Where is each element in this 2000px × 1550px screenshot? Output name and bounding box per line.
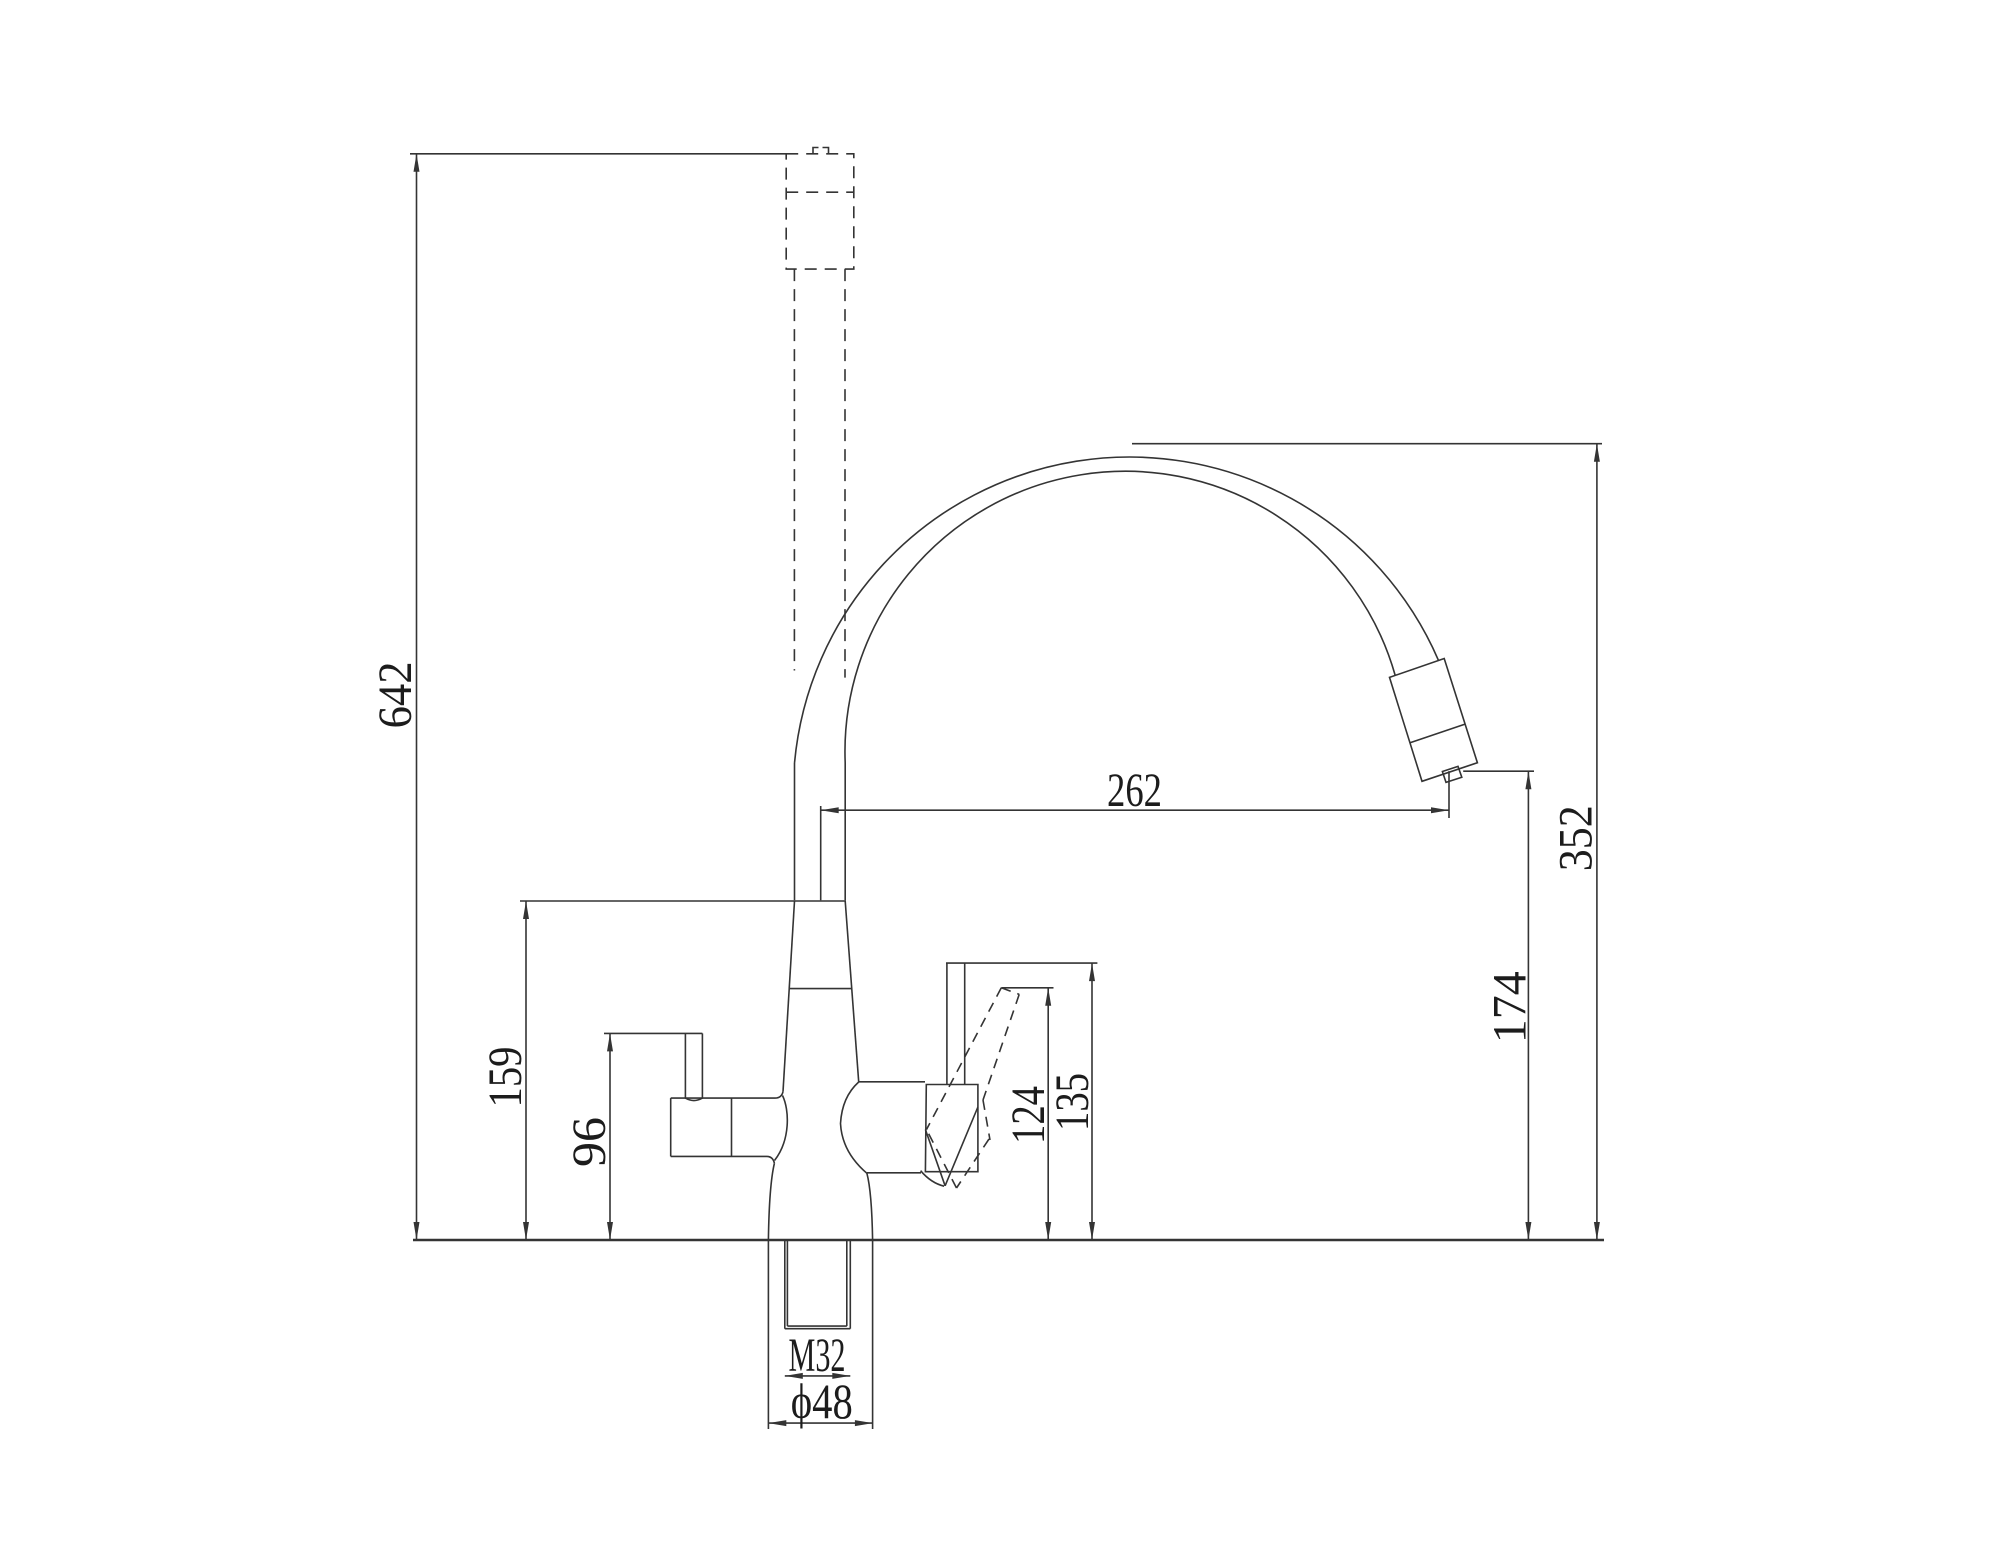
- svg-text:642: 642: [369, 661, 422, 728]
- svg-text:ϕ48: ϕ48: [791, 1373, 853, 1429]
- svg-text:135: 135: [1046, 1073, 1099, 1131]
- svg-text:174: 174: [1483, 971, 1536, 1043]
- svg-text:96: 96: [563, 1117, 616, 1167]
- svg-text:262: 262: [1107, 764, 1162, 817]
- svg-text:159: 159: [479, 1047, 532, 1108]
- svg-text:352: 352: [1550, 805, 1603, 871]
